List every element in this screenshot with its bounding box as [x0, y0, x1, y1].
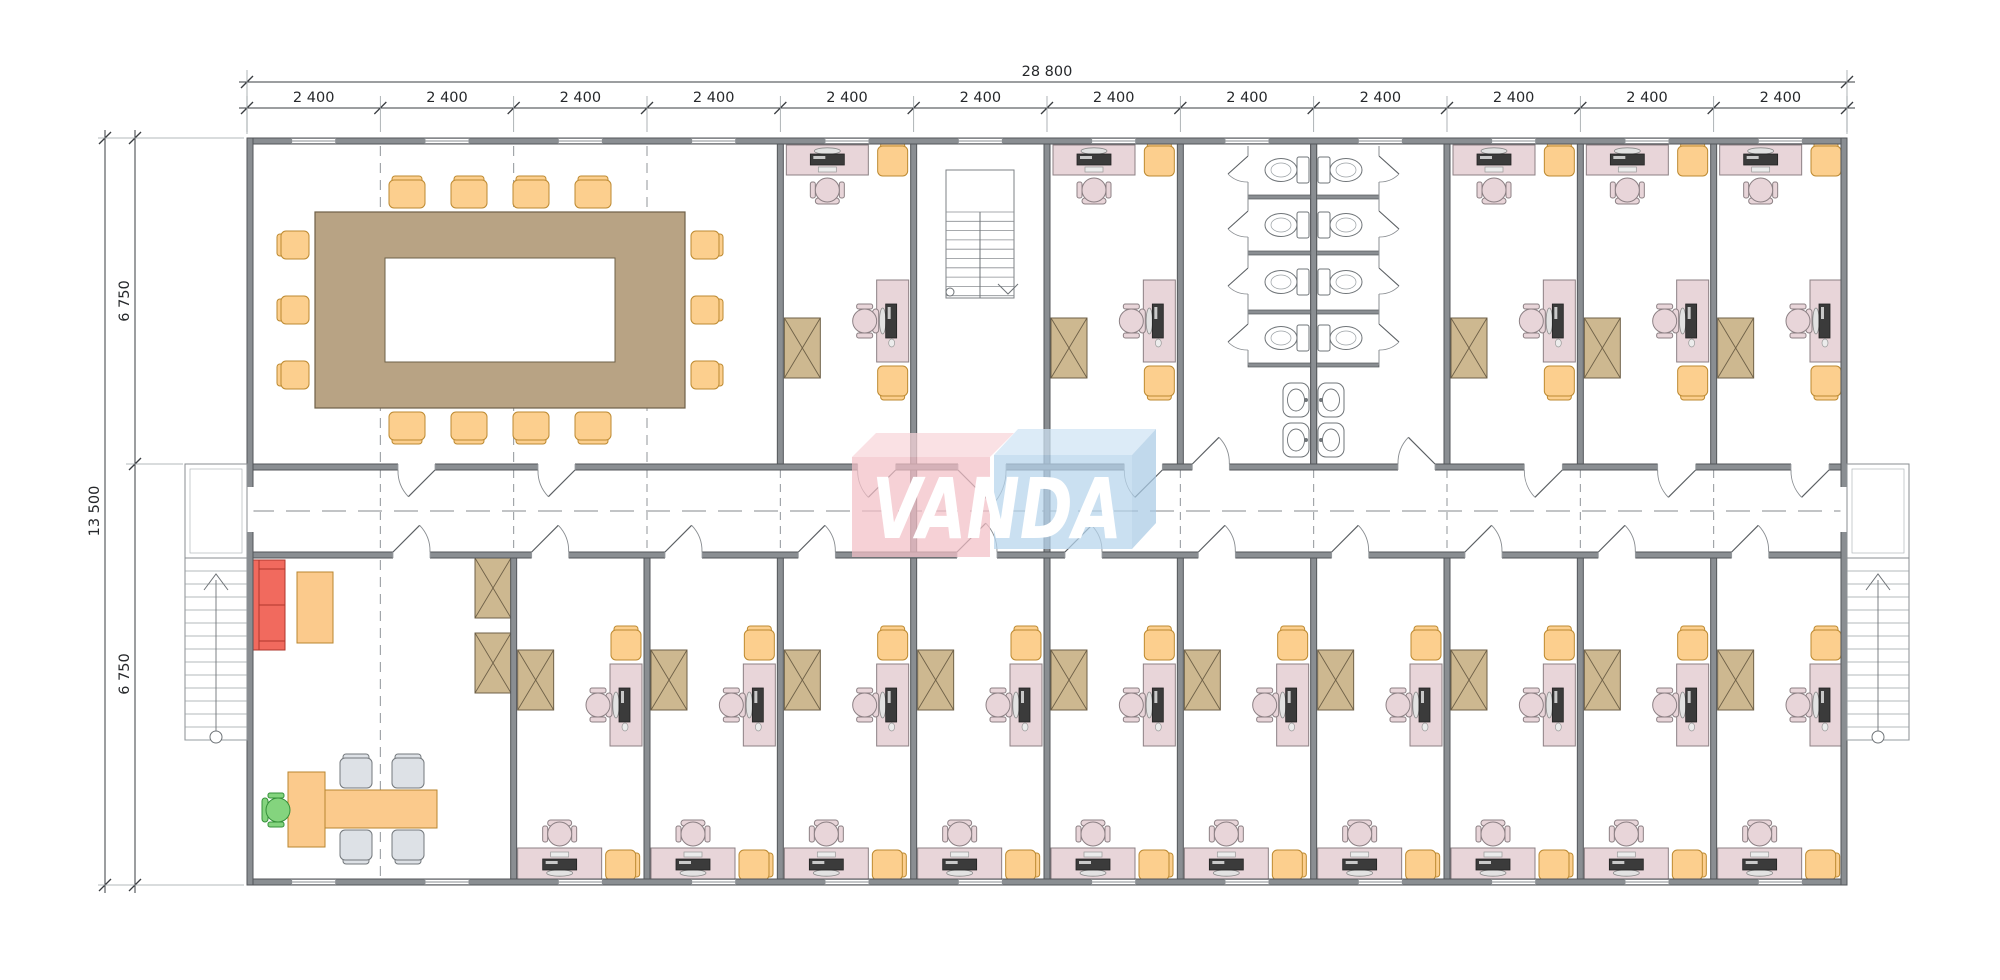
storage-cabinet: [1451, 318, 1487, 378]
task-chair: [1476, 820, 1510, 846]
window: [1225, 138, 1269, 144]
task-chair: [809, 820, 843, 846]
task-chair: [1119, 688, 1145, 722]
window: [1758, 879, 1802, 885]
partition-bottom-band: [511, 558, 517, 879]
visitor-chair: [1811, 626, 1841, 660]
dim-label-module-10: 2 400: [1493, 90, 1535, 106]
storage-cabinet: [475, 633, 511, 693]
visitor-chair: [1544, 626, 1574, 660]
partition-bottom-band: [1044, 558, 1050, 879]
meeting-table: [325, 790, 437, 828]
window: [292, 138, 336, 144]
visitor-chair: [691, 231, 723, 259]
conference-room: [277, 176, 723, 444]
window: [1225, 879, 1269, 885]
visitor-chair: [878, 142, 908, 176]
office-bottom-3: [784, 626, 908, 880]
tap: [1319, 438, 1323, 442]
floor-plan-page: 28 8002 4002 4002 4002 4002 4002 4002 40…: [0, 0, 2000, 980]
task-chair: [1519, 688, 1545, 722]
window: [825, 138, 869, 144]
task-chair-seat: [1749, 178, 1773, 202]
window: [1492, 138, 1536, 144]
visitor-chair: [1144, 142, 1174, 176]
task-chair-seat: [948, 822, 972, 846]
partition-bottom-band: [1577, 558, 1583, 879]
visitor-chair: [1806, 850, 1840, 880]
visitor-chair: [389, 176, 425, 208]
tap: [1304, 398, 1308, 402]
task-chair: [1076, 820, 1110, 846]
logo-text: VANDA: [872, 460, 1122, 558]
stair-newel: [946, 288, 954, 296]
task-chair: [810, 178, 844, 204]
window: [425, 879, 469, 885]
partition-bottom-band: [1311, 558, 1317, 879]
task-chair-seat: [1081, 822, 1105, 846]
partition-top-band: [1444, 144, 1450, 464]
visitor-chair: [872, 850, 906, 880]
visitor-chair: [1272, 850, 1306, 880]
task-chair: [1743, 820, 1777, 846]
task-chair-seat: [1519, 309, 1543, 333]
office-top-3: [1451, 142, 1575, 400]
partition-bottom-band: [644, 558, 650, 879]
visitor-chair: [1678, 366, 1708, 400]
task-chair-seat: [1653, 693, 1677, 717]
guest-chair: [340, 830, 372, 864]
visitor-chair: [1278, 626, 1308, 660]
dim-label-module-5: 2 400: [826, 90, 868, 106]
storage-cabinet: [651, 650, 687, 710]
storage-cabinet: [518, 650, 554, 710]
task-chair: [986, 688, 1012, 722]
window: [425, 138, 469, 144]
task-chair: [1786, 688, 1812, 722]
task-chair: [676, 820, 710, 846]
task-chair-seat: [1615, 178, 1639, 202]
toilet: [1318, 157, 1362, 183]
partition-top-band: [1177, 144, 1183, 464]
storage-cabinet: [1718, 318, 1754, 378]
guest-chair: [392, 830, 424, 864]
task-chair-seat: [1653, 309, 1677, 333]
window: [1758, 138, 1802, 144]
toilet: [1265, 325, 1309, 351]
office-bottom-2: [651, 626, 775, 880]
logo-pink-box-top: [852, 433, 1014, 457]
task-chair: [1119, 304, 1145, 338]
task-chair: [1343, 820, 1377, 846]
task-chair: [1786, 304, 1812, 338]
window: [558, 138, 602, 144]
office-bottom-6: [1184, 626, 1308, 880]
window: [1492, 879, 1536, 885]
partition-bottom-band: [1444, 558, 1450, 879]
dim-label-module-6: 2 400: [960, 90, 1002, 106]
task-chair-seat: [815, 178, 839, 202]
task-chair-seat: [1386, 693, 1410, 717]
visitor-chair: [1811, 366, 1841, 400]
task-chair-seat: [1214, 822, 1238, 846]
task-chair-seat: [1119, 309, 1143, 333]
dimension-top: 28 8002 4002 4002 4002 4002 4002 4002 40…: [239, 64, 1855, 134]
task-chair-seat: [681, 822, 705, 846]
exterior-wall-top: [247, 138, 1847, 144]
task-chair-seat: [1253, 693, 1277, 717]
sofa: [250, 560, 285, 650]
dim-label-module-12: 2 400: [1760, 90, 1802, 106]
task-chair: [586, 688, 612, 722]
tap: [1304, 438, 1308, 442]
visitor-chair: [1672, 850, 1706, 880]
visitor-chair: [575, 412, 611, 444]
task-chair: [1386, 688, 1412, 722]
visitor-chair: [1006, 850, 1040, 880]
visitor-chair: [1139, 850, 1173, 880]
task-chair: [853, 688, 879, 722]
office-bottom-7: [1318, 626, 1442, 880]
task-chair-seat: [586, 693, 610, 717]
task-chair-seat: [1348, 822, 1372, 846]
visitor-chair: [389, 412, 425, 444]
storage-cabinet: [1584, 318, 1620, 378]
storage-cabinet: [475, 558, 511, 618]
storage-cabinet: [784, 650, 820, 710]
office-bottom-4: [918, 626, 1042, 880]
floor-plan-svg: 28 8002 4002 4002 4002 4002 4002 4002 40…: [0, 0, 2000, 980]
visitor-chair: [691, 296, 723, 324]
storage-cabinet: [1184, 650, 1220, 710]
visitor-chair: [1144, 366, 1174, 400]
vanda-logo: VANDA: [852, 429, 1156, 558]
dim-label-module-2: 2 400: [426, 90, 468, 106]
tap: [1319, 398, 1323, 402]
stair-newel: [210, 731, 222, 743]
visitor-chair: [1539, 850, 1573, 880]
dim-label-total: 28 800: [1022, 64, 1073, 80]
task-chair-seat: [814, 822, 838, 846]
storage-cabinet: [1451, 650, 1487, 710]
visitor-chair: [606, 850, 640, 880]
wash-basin: [1283, 423, 1309, 457]
visitor-chair: [1544, 366, 1574, 400]
green-task-chair: [262, 793, 290, 827]
visitor-chair: [1411, 626, 1441, 660]
window: [692, 138, 736, 144]
window: [825, 879, 869, 885]
dim-label-vseg-1: 6 750: [117, 280, 133, 322]
green-task-chair-seat: [266, 798, 290, 822]
storage-cabinet: [1718, 650, 1754, 710]
visitor-chair: [1406, 850, 1440, 880]
office-top-1: [784, 142, 908, 400]
window: [692, 879, 736, 885]
visitor-chair: [277, 296, 309, 324]
partition-bottom-band: [1177, 558, 1183, 879]
visitor-chair: [277, 361, 309, 389]
visitor-chair: [451, 412, 487, 444]
visitor-chair: [1678, 626, 1708, 660]
toilet: [1318, 212, 1362, 238]
guest-chair: [392, 754, 424, 788]
dim-label-module-3: 2 400: [560, 90, 602, 106]
task-chair-seat: [1119, 693, 1143, 717]
storage-cabinet: [1318, 650, 1354, 710]
office-bottom-5: [1051, 626, 1175, 880]
visitor-chair: [878, 626, 908, 660]
toilet: [1318, 325, 1362, 351]
visitor-chair: [691, 361, 723, 389]
partition-bottom-band: [1711, 558, 1717, 879]
task-chair: [1653, 688, 1679, 722]
wash-basin: [1318, 383, 1344, 417]
task-chair: [1477, 178, 1511, 204]
visitor-chair: [744, 626, 774, 660]
dim-label-module-1: 2 400: [293, 90, 335, 106]
logo-blue-box-top: [994, 429, 1156, 455]
task-chair: [1209, 820, 1243, 846]
partition-bottom-band: [777, 558, 783, 879]
wc-centre-wall: [1311, 144, 1317, 464]
reception-desk: [288, 772, 325, 847]
task-chair-seat: [548, 822, 572, 846]
office-bottom-8: [1451, 626, 1575, 880]
dim-label-module-7: 2 400: [1093, 90, 1135, 106]
visitor-chair: [739, 850, 773, 880]
visitor-chair: [513, 176, 549, 208]
partition-top-band: [911, 144, 917, 464]
task-chair: [853, 304, 879, 338]
task-chair-seat: [1481, 822, 1505, 846]
office-bottom-1: [518, 626, 642, 880]
window: [1358, 138, 1402, 144]
exterior-wall-bottom: [247, 879, 1847, 885]
task-chair: [1609, 820, 1643, 846]
task-chair-seat: [1614, 822, 1638, 846]
visitor-chair: [451, 176, 487, 208]
toilet: [1318, 269, 1362, 295]
task-chair: [1610, 178, 1644, 204]
visitor-chair: [1678, 142, 1708, 176]
window: [1625, 879, 1669, 885]
task-chair: [719, 688, 745, 722]
visitor-chair: [1144, 626, 1174, 660]
visitor-chair: [575, 176, 611, 208]
task-chair: [1744, 178, 1778, 204]
partition-top-band: [1711, 144, 1717, 464]
task-chair-seat: [1786, 309, 1810, 333]
coffee-table: [297, 572, 333, 643]
storage-cabinet: [1051, 318, 1087, 378]
window: [958, 879, 1002, 885]
entrance-left: [185, 464, 247, 743]
task-chair-seat: [1786, 693, 1810, 717]
visitor-chair: [1811, 142, 1841, 176]
partition-top-band: [1044, 144, 1050, 464]
dim-label-vseg-2: 6 750: [117, 653, 133, 695]
guest-chair: [340, 754, 372, 788]
task-chair: [1253, 688, 1279, 722]
visitor-chair: [277, 231, 309, 259]
toilet: [1265, 212, 1309, 238]
toilet: [1265, 157, 1309, 183]
visitor-chair: [1544, 142, 1574, 176]
window: [1092, 879, 1136, 885]
window: [958, 138, 1002, 144]
entrance-right: [1847, 464, 1909, 743]
task-chair: [1519, 304, 1545, 338]
office-bottom-9: [1584, 626, 1708, 880]
task-chair-seat: [719, 693, 743, 717]
task-chair-seat: [1748, 822, 1772, 846]
partition-top-band: [777, 144, 783, 464]
stairwell: [946, 170, 1018, 298]
wash-basin: [1283, 383, 1309, 417]
task-chair: [543, 820, 577, 846]
office-top-2: [1051, 142, 1175, 400]
task-chair-seat: [1482, 178, 1506, 202]
window: [1625, 138, 1669, 144]
dim-label-module-8: 2 400: [1226, 90, 1268, 106]
storage-cabinet: [1584, 650, 1620, 710]
task-chair: [1653, 304, 1679, 338]
dim-label-module-4: 2 400: [693, 90, 735, 106]
task-chair-seat: [986, 693, 1010, 717]
visitor-chair: [611, 626, 641, 660]
partition-top-band: [1577, 144, 1583, 464]
visitor-chair: [878, 366, 908, 400]
toilet: [1265, 269, 1309, 295]
storage-cabinet: [784, 318, 820, 378]
window: [1358, 879, 1402, 885]
office-top-5: [1718, 142, 1842, 400]
stair-newel: [1872, 731, 1884, 743]
office-top-4: [1584, 142, 1708, 400]
conference-table: [315, 212, 685, 408]
window: [292, 879, 336, 885]
task-chair-seat: [1082, 178, 1106, 202]
task-chair-seat: [853, 309, 877, 333]
partition-bottom-band: [911, 558, 917, 879]
wash-basin: [1318, 423, 1344, 457]
window: [1092, 138, 1136, 144]
task-chair-seat: [853, 693, 877, 717]
window: [558, 879, 602, 885]
storage-cabinet: [1051, 650, 1087, 710]
dim-label-vtotal: 13 500: [87, 486, 103, 537]
task-chair-seat: [1519, 693, 1543, 717]
visitor-chair: [513, 412, 549, 444]
storage-cabinet: [918, 650, 954, 710]
visitor-chair: [1011, 626, 1041, 660]
task-chair: [943, 820, 977, 846]
task-chair: [1077, 178, 1111, 204]
office-bottom-10: [1718, 626, 1842, 880]
dim-label-module-9: 2 400: [1360, 90, 1402, 106]
dim-label-module-11: 2 400: [1626, 90, 1668, 106]
